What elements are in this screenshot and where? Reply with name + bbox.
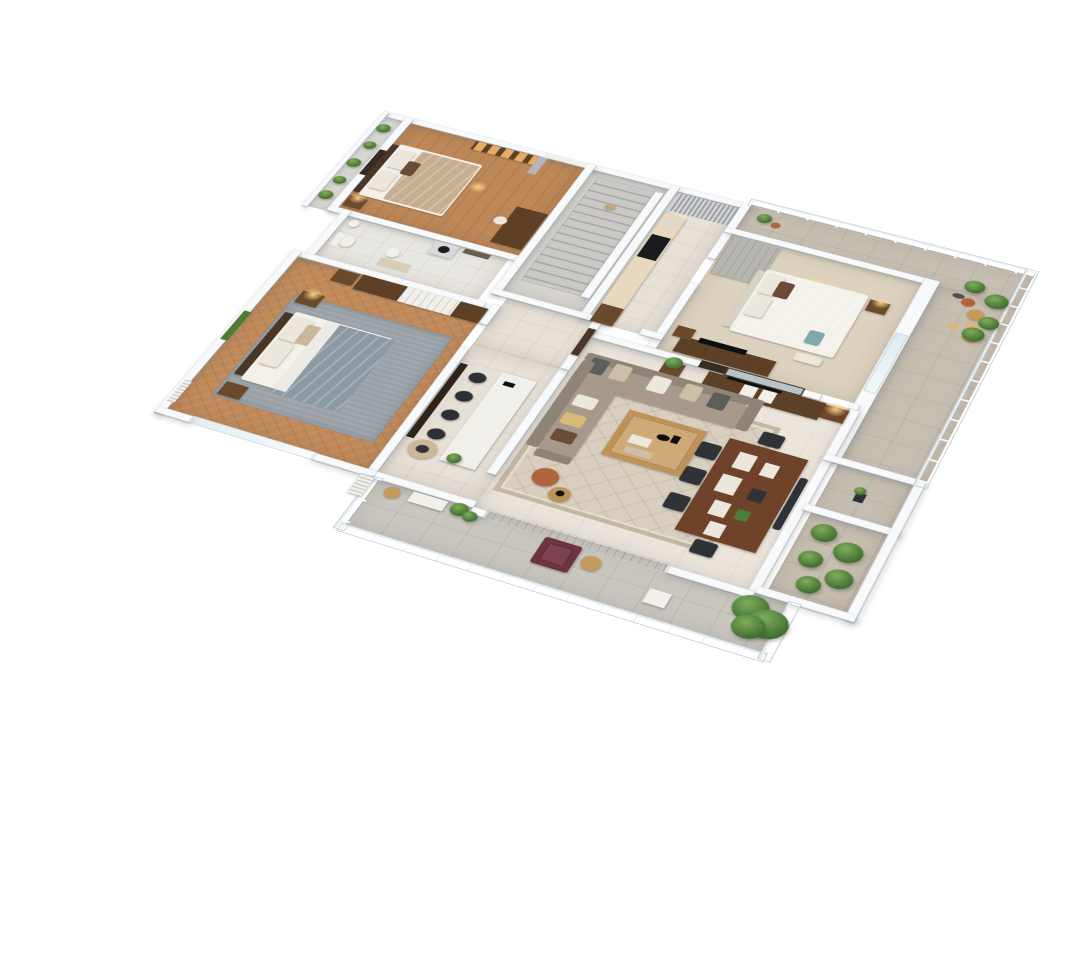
apartment-3d-floor-plan: [0, 0, 1072, 960]
floor-plan: [0, 103, 1061, 826]
